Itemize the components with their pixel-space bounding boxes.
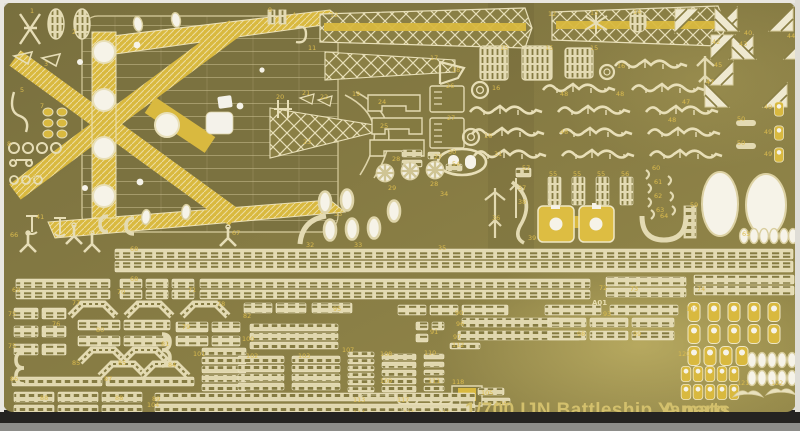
wov-use [758, 353, 767, 368]
part-number-label: 67 [84, 229, 92, 237]
part-number-label: 15 [545, 44, 553, 52]
part-number-label: 75 [8, 310, 16, 318]
part-number-label: 118 [452, 378, 464, 386]
part-number-label: 48 [560, 128, 568, 136]
slot-use [708, 303, 720, 322]
part-number-label: 8 [7, 140, 11, 148]
part-number-label: 109 [380, 377, 392, 385]
railing-strip-part [212, 322, 240, 332]
photo-frame: 1234576891112121314151515161616171819202… [0, 0, 800, 431]
part-number-label: 12 [548, 10, 556, 18]
part-number-label: 47 [682, 98, 690, 106]
part-number-label: 16 [617, 62, 625, 70]
slot-use [768, 325, 780, 344]
part-number-label: 70 [117, 288, 125, 296]
railing-strip-part [590, 331, 628, 340]
slot-use [717, 366, 727, 381]
slot-use [705, 366, 715, 381]
railing-strip-part [42, 308, 66, 319]
part-number-label: 45 [714, 61, 722, 69]
part-number-label: 108 [380, 350, 392, 358]
part-number-label: 73 [630, 285, 638, 293]
part-number-label: 85 [72, 359, 80, 367]
railing-strip-part [632, 318, 674, 327]
railing-strip-part [348, 366, 374, 371]
xc-use [401, 162, 418, 179]
part-number-label: 22 [320, 93, 328, 101]
slot-use [775, 126, 784, 140]
part-number-label: 117 [397, 396, 409, 404]
railing-strip-part [424, 386, 444, 391]
railing-strip-part [16, 290, 110, 299]
part-number-label: 2 [72, 28, 76, 36]
ovr-use [368, 218, 380, 239]
teardrop-grille-part [74, 9, 90, 39]
grille-strip-part [548, 177, 561, 205]
part-number-label: 87 [104, 375, 112, 383]
wov-use [760, 229, 769, 244]
teardrop-grille-part [48, 9, 64, 39]
railing-strip-part [238, 383, 284, 390]
part-number-label: 79 [182, 323, 190, 331]
part-number-label: 113 [353, 396, 365, 404]
part-number-label: 38 [518, 198, 526, 206]
railing-strip-part [42, 344, 66, 355]
wov-use [780, 229, 789, 244]
part-number-label: 29 [388, 184, 396, 192]
part-number-label: 88 [40, 394, 48, 402]
slot-use [728, 303, 740, 322]
railing-strip-part [348, 387, 374, 392]
railing-strip-part [382, 362, 416, 368]
part-number-label: 42 [712, 38, 720, 46]
part-number-label: 78 [217, 300, 225, 308]
railing-strip-part [78, 336, 120, 346]
railing-strip-part [590, 318, 628, 327]
part-number-label: 15 [590, 44, 598, 52]
slot-use [708, 325, 720, 344]
part-number-label: 35 [438, 244, 446, 252]
part-number-label: 49 [764, 103, 772, 111]
part-number-label: 62 [654, 192, 662, 200]
part-number-label: 88 [115, 394, 123, 402]
railing-strip-part [212, 336, 240, 346]
part-number-label: 56 [621, 170, 629, 178]
part-number-label: 15 [500, 44, 508, 52]
part-number-label: 82 [243, 312, 251, 320]
part-number-label: 34 [440, 190, 448, 198]
railing-strip-part [348, 359, 374, 364]
part-number-label: 68 [130, 245, 138, 253]
ovr-use [346, 219, 358, 240]
part-number-label: 80 [96, 326, 104, 334]
part-number-label: 102 [246, 352, 258, 360]
railing-strip-part [382, 386, 416, 392]
railing-strip-part [292, 374, 340, 381]
slot-use [768, 303, 780, 322]
part-number-label: 54 [452, 160, 460, 168]
railing-strip-part [348, 373, 374, 378]
railing-strip-part [106, 377, 194, 386]
grille-strip-part [596, 177, 609, 205]
part-number-label: 68 [130, 275, 138, 283]
xc-use [376, 164, 393, 181]
part-number-label: 44 [787, 32, 795, 40]
slot-use [681, 384, 691, 399]
part-number-label: 20 [276, 93, 284, 101]
part-number-label: 76 [52, 320, 60, 328]
grille-strip-part [620, 177, 633, 205]
part-number-label: 120 [678, 350, 690, 358]
xc-use [426, 161, 443, 178]
wov-use [778, 353, 787, 368]
part-number-label: 48 [616, 90, 624, 98]
part-number-label: 25 [380, 122, 388, 130]
part-number-label: 49 [764, 128, 772, 136]
part-number-label: 111 [428, 377, 440, 385]
railing-strip-part [312, 303, 352, 313]
railing-strip-part [146, 279, 168, 288]
railing-strip-part [382, 370, 416, 376]
part-number-label: 55 [597, 170, 605, 178]
part-number-label: 97 [453, 333, 461, 341]
railing-strip-part [416, 334, 428, 342]
part-number-label: 31 [494, 150, 502, 158]
railing-strip-part [124, 320, 170, 330]
large-oval-blank [746, 174, 786, 236]
railing-strip-part [548, 318, 586, 327]
grille-platform-parts [480, 46, 593, 80]
part-number-label: 99 [633, 330, 641, 338]
part-number-label: 67 [232, 229, 240, 237]
photo-edge-right [795, 0, 800, 412]
part-number-label: 101 [193, 350, 205, 358]
part-number-label: 66 [10, 231, 18, 239]
railing-strip-part [14, 308, 38, 319]
ovr-use [319, 192, 331, 213]
part-number-label: 17 [430, 54, 438, 62]
part-number-label: 61 [654, 178, 662, 186]
ovr-use [341, 190, 353, 211]
slot-use [748, 303, 760, 322]
railing-strip-part [155, 393, 475, 401]
part-number-label: 28 [392, 155, 400, 163]
part-number-label: 50 [737, 139, 745, 147]
slot-use [693, 384, 703, 399]
part-number-label: 28 [430, 180, 438, 188]
railing-strip-part [58, 392, 98, 402]
wov-use [750, 229, 759, 244]
part-number-label: 1 [30, 7, 34, 15]
part-number-label: 48 [668, 116, 676, 124]
part-number-label: 91 [430, 328, 438, 336]
railing-strip-part [292, 383, 340, 390]
part-number-label: 90 [455, 309, 463, 317]
railing-strip-part [176, 336, 208, 346]
railing-strip-part [694, 286, 794, 295]
part-number-label: 12 [330, 11, 338, 19]
part-number-label: 84 [168, 361, 176, 369]
part-number-label: 100 [242, 335, 254, 343]
slot-use [736, 347, 748, 366]
part-number-label: 121 [737, 379, 749, 387]
railing-strip-part [292, 365, 340, 372]
part-number-label: 13 [590, 9, 598, 17]
railing-strip-part [250, 324, 338, 331]
part-number-label: 7 [40, 102, 44, 110]
wov-use [768, 353, 777, 368]
slot-use [775, 148, 784, 162]
part-number-label: 39 [528, 234, 536, 242]
part-number-label: 55 [573, 170, 581, 178]
part-number-label: 105 [481, 389, 493, 397]
ovr-use [388, 201, 400, 222]
railing-strip-part [416, 322, 428, 330]
railing-strip-part [238, 365, 284, 372]
part-number-label: 6 [32, 172, 36, 180]
part-number-label: 104 [147, 401, 159, 409]
part-number-label: 48 [560, 90, 568, 98]
part-number-label: 77 [72, 299, 80, 307]
part-number-label: 64 [660, 212, 668, 220]
part-number-label: 37 [518, 184, 526, 192]
part-number-label: 75 [8, 342, 16, 350]
slot-use [748, 325, 760, 344]
part-number-label: 74 [697, 285, 705, 293]
part-number-label: 71 [188, 286, 196, 294]
slot-use [693, 366, 703, 381]
part-number-label: 93 [603, 310, 611, 318]
photo-edge-left [0, 0, 4, 412]
part-number-label: 27 [434, 153, 442, 161]
railing-strip-part [606, 288, 686, 297]
part-number-label: 11 [308, 44, 316, 52]
plate-marking: A01 [592, 299, 607, 307]
part-number-label: 60 [652, 164, 660, 172]
railing-strip-part [462, 305, 508, 315]
railing-strip-part [14, 326, 38, 337]
part-number-label: 33 [334, 210, 342, 218]
railing-strip-part [250, 342, 338, 349]
part-number-label: 95 [333, 305, 341, 313]
part-number-label: 27 [447, 114, 455, 122]
part-number-label: 14 [633, 8, 641, 16]
slot-use [704, 347, 716, 366]
grille-strip-part [572, 177, 585, 205]
part-number-label: 40 [744, 29, 752, 37]
part-number-label: 4 [292, 11, 296, 19]
railing-strip-part [610, 305, 678, 315]
railing-strip-part [115, 261, 793, 272]
slot-use [688, 325, 700, 344]
railing-strip-part [348, 380, 374, 385]
railing-strip-part [362, 395, 396, 401]
part-number-label: 119 [686, 305, 698, 313]
part-number-label: 3 [44, 60, 48, 68]
slot-use [775, 102, 784, 116]
railing-strip-part [200, 279, 590, 288]
part-number-label: 81 [161, 340, 169, 348]
part-number-label: 55 [549, 170, 557, 178]
railing-strip-part [176, 322, 208, 332]
part-number-label: 86 [10, 375, 18, 383]
part-number-label: 98 [577, 330, 585, 338]
railing-strip-part [238, 374, 284, 381]
part-number-label: 96 [456, 320, 464, 328]
railing-strip-part [424, 370, 444, 375]
railing-strip-part [146, 290, 168, 299]
railing-strip-part [402, 150, 422, 157]
part-number-label: 103 [298, 352, 310, 360]
part-number-label: 21 [302, 89, 310, 97]
part-number-label: 50 [737, 115, 745, 123]
part-number-label: 32 [306, 241, 314, 249]
part-number-label: 59 [690, 201, 698, 209]
part-number-label: 110 [424, 349, 436, 357]
pe-sheet-photo: 1234576891112121314151515161616171819202… [0, 0, 800, 431]
part-number-label: 26 [446, 82, 454, 90]
large-oval-blank [702, 172, 738, 236]
part-number-label: 5 [20, 86, 24, 94]
railing-strip-part [606, 277, 686, 286]
railing-strip-part [115, 249, 793, 259]
part-number-label: 85 [118, 359, 126, 367]
slot-use [720, 347, 732, 366]
part-number-label: 69 [12, 286, 20, 294]
part-number-label: 19 [352, 90, 360, 98]
wov-use [758, 371, 767, 386]
railing-strip-part [398, 305, 426, 315]
wov-use [748, 353, 757, 368]
part-number-label: 65 [742, 230, 750, 238]
slot-use [705, 384, 715, 399]
part-number-label: 107 [342, 346, 354, 354]
railing-strip-part [250, 333, 338, 340]
slot-use [728, 325, 740, 344]
part-number-label: 30 [448, 148, 456, 156]
railing-strip-part [462, 318, 560, 327]
part-number-label: 9 [268, 6, 272, 14]
railing-strip-part [200, 290, 590, 299]
part-number-label: 23 [303, 138, 311, 146]
part-number-label: 47 [706, 78, 714, 86]
part-number-label: 122 [771, 379, 783, 387]
wov-use [770, 229, 779, 244]
part-number-label: 49 [764, 150, 772, 158]
part-number-label: 43 [739, 40, 747, 48]
slot-use [717, 384, 727, 399]
railing-strip-part [202, 348, 246, 355]
railing-strip-part [238, 356, 284, 363]
railing-strip-part [16, 279, 110, 288]
table-edge [0, 423, 800, 431]
railing-strip-part [430, 305, 458, 315]
part-number-label: 57 [522, 164, 530, 172]
part-number-label: 24 [378, 98, 386, 106]
part-number-label: 18 [452, 66, 460, 74]
photo-edge-top [0, 0, 800, 3]
part-number-label: 16 [492, 84, 500, 92]
railing-strip-part [12, 377, 102, 386]
part-number-label: 33 [354, 241, 362, 249]
ovr-use [324, 220, 336, 241]
railing-strip-part [276, 303, 306, 313]
part-number-label: 41 [36, 213, 44, 221]
slot-use [681, 366, 691, 381]
part-number-label: 72 [599, 284, 607, 292]
part-number-label: 16 [484, 132, 492, 140]
railing-strip-part [424, 362, 444, 367]
part-number-label: 36 [492, 214, 500, 222]
part-number-label: 112 [452, 341, 464, 349]
railing-strip-part [694, 275, 794, 284]
